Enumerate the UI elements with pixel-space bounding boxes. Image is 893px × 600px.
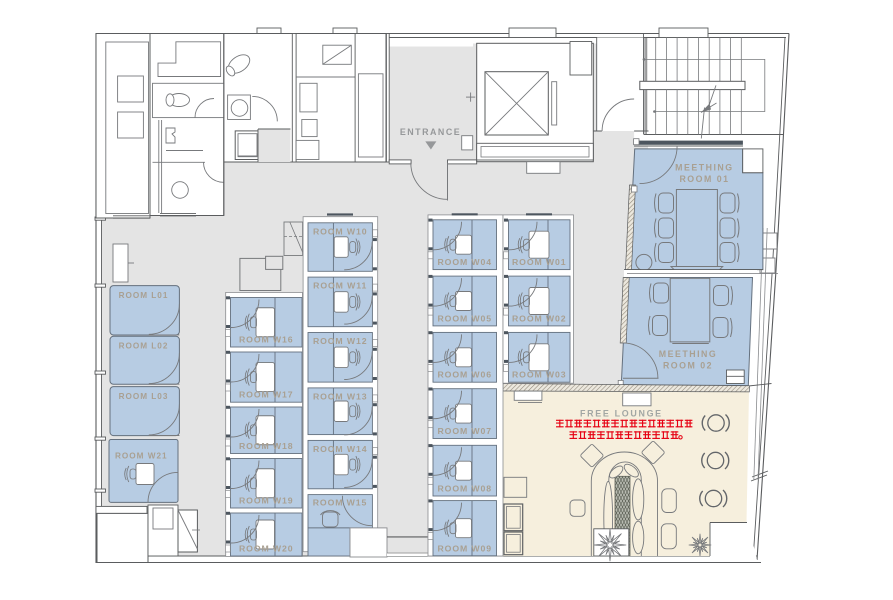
svg-text:ROOM W08: ROOM W08 [437,484,492,494]
svg-text:ROOM W15: ROOM W15 [313,498,368,508]
svg-text:ROOM W16: ROOM W16 [239,335,294,345]
svg-text:ROOM L02: ROOM L02 [119,342,169,351]
svg-text:ROOM W03: ROOM W03 [512,370,567,380]
svg-text:ROOM W02: ROOM W02 [512,313,567,323]
svg-text:MEETHING: MEETHING [659,349,717,359]
svg-text:ROOM W12: ROOM W12 [313,336,368,346]
svg-text:FREE LOUNGE: FREE LOUNGE [580,409,663,419]
svg-text:ROOM W06: ROOM W06 [437,370,492,380]
svg-text:ROOM L01: ROOM L01 [119,291,169,300]
svg-text:ROOM W05: ROOM W05 [437,313,492,323]
svg-text:ROOM W07: ROOM W07 [437,426,492,436]
svg-text:ROOM W18: ROOM W18 [239,441,294,451]
svg-text:ROOM W01: ROOM W01 [512,257,567,267]
svg-text:ROOM W11: ROOM W11 [313,281,367,291]
svg-text:ROOM W14: ROOM W14 [313,444,368,454]
svg-text:ROOM 02: ROOM 02 [663,361,713,371]
svg-text:ROOM W19: ROOM W19 [239,496,294,506]
svg-text:ROOM W17: ROOM W17 [239,390,294,400]
svg-text:ROOM W04: ROOM W04 [437,257,492,267]
svg-text:ROOM W10: ROOM W10 [313,226,368,236]
svg-text:ROOM W09: ROOM W09 [437,543,492,553]
svg-text:ROOM W13: ROOM W13 [313,391,368,401]
svg-text:MEETHING: MEETHING [675,163,733,173]
svg-text:ROOM 01: ROOM 01 [679,174,729,184]
svg-text:ENTRANCE: ENTRANCE [400,127,461,137]
svg-text:ROOM L03: ROOM L03 [119,392,169,401]
svg-text:ROOM W21: ROOM W21 [115,451,168,460]
svg-text:ROOM W20: ROOM W20 [239,544,294,554]
